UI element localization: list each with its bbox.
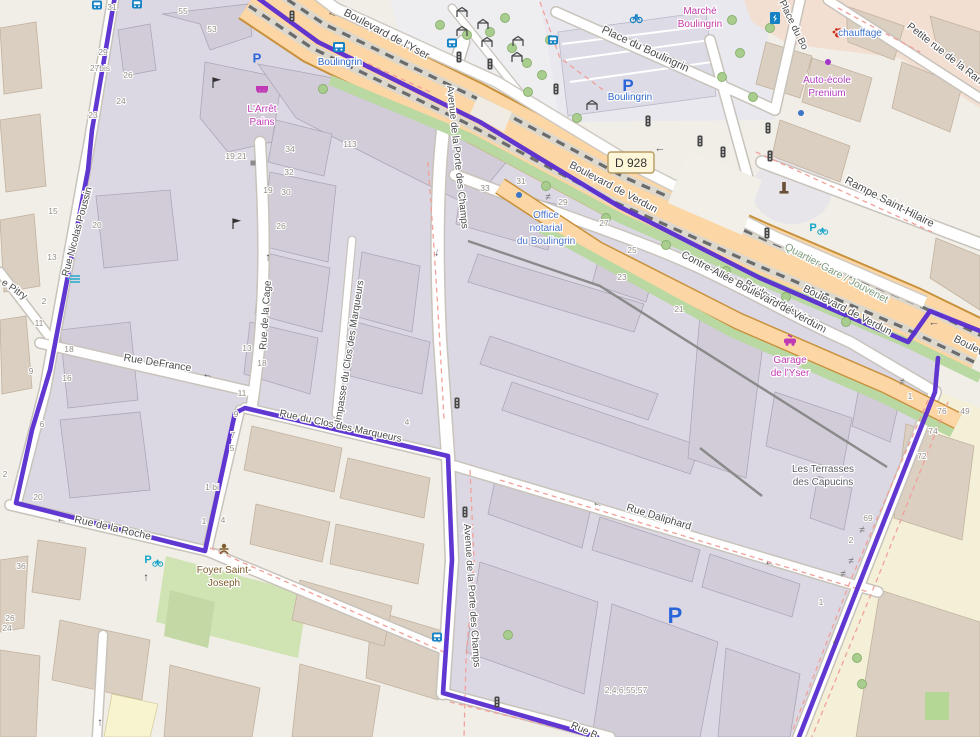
tree-icon xyxy=(319,85,328,94)
poi-label-garage-yser: Garage xyxy=(773,355,807,366)
house-number: 49 xyxy=(960,406,970,416)
house-number: 1 xyxy=(819,597,824,607)
poi-label-marche-boulingrin: Boulingrin xyxy=(678,19,722,30)
traffic-light-icon xyxy=(765,228,770,239)
house-number: 74 xyxy=(928,426,938,436)
house-number: 72 xyxy=(917,451,927,461)
tree-icon xyxy=(728,16,737,25)
house-number: 16 xyxy=(62,373,72,383)
tree-icon xyxy=(524,88,533,97)
house-number: 24 xyxy=(2,623,12,633)
svg-text:←: ← xyxy=(929,317,940,329)
house-number: 36 xyxy=(16,561,26,571)
gate-icon: ≠ xyxy=(848,556,854,567)
house-number: 55 xyxy=(178,6,188,16)
bus-stop-icon xyxy=(132,0,142,9)
road-ref-badge: D 928 xyxy=(608,152,654,173)
gate-icon: ≠ xyxy=(859,525,865,536)
tree-icon xyxy=(504,631,513,640)
house-number: 19 xyxy=(263,185,273,195)
house-number: 19;21 xyxy=(225,151,247,161)
dot-blue-icon xyxy=(798,110,804,116)
traffic-light-icon xyxy=(554,84,559,95)
arrow-left-icon: ← xyxy=(655,143,666,155)
map-svg: PPPPP≠≠≠≠≠←←←←←←←←↑↑↑↓↓ 3155532927bis262… xyxy=(0,0,980,737)
green-plot xyxy=(925,692,949,720)
charging-station-icon xyxy=(770,12,780,24)
tree-icon xyxy=(662,241,671,250)
svg-text:≠: ≠ xyxy=(840,569,846,580)
house-number: 2 xyxy=(849,535,854,545)
traffic-light-icon xyxy=(698,136,703,147)
house-number: 9 xyxy=(234,409,239,419)
poi-label-office-notarial: du Boulingrin xyxy=(517,236,575,247)
tree-icon xyxy=(501,14,510,23)
traffic-light-icon xyxy=(488,59,493,70)
house-number: 32 xyxy=(284,167,294,177)
arrow-up-icon: ↑ xyxy=(97,717,103,729)
house-number: 76 xyxy=(937,406,947,416)
poi-label-marche-boulingrin: Marché xyxy=(683,6,717,17)
house-number: 31 xyxy=(516,176,526,186)
svg-text:↑: ↑ xyxy=(143,572,149,584)
house-number: 24 xyxy=(116,96,126,106)
house-number: 7 xyxy=(231,430,236,440)
svg-text:P: P xyxy=(668,603,683,628)
svg-text:↑: ↑ xyxy=(97,717,103,729)
shop-awning-icon xyxy=(256,86,268,93)
house-number: 27bis xyxy=(90,63,110,73)
poi-label-chauffage: chauffage xyxy=(838,28,882,39)
arrow-up-icon: ↑ xyxy=(143,572,149,584)
house-number: 1 xyxy=(908,391,913,401)
svg-text:↑: ↑ xyxy=(265,252,271,264)
tree-icon xyxy=(749,93,758,102)
house-number: 1 bi xyxy=(205,482,219,492)
gate-icon: ≠ xyxy=(840,569,846,580)
parking-icon: P xyxy=(668,603,683,628)
house-number: 26 xyxy=(123,70,133,80)
house-number: 21 xyxy=(674,304,684,314)
poi-label-parking-boulingrin: Boulingrin xyxy=(608,92,652,103)
house-number: 20 xyxy=(33,492,43,502)
house-number: 26 xyxy=(276,221,286,231)
house-number: 11 xyxy=(238,388,247,398)
traffic-light-icon xyxy=(457,52,462,63)
svg-text:≠: ≠ xyxy=(848,556,854,567)
tree-icon xyxy=(523,59,532,68)
house-number: 23 xyxy=(617,272,627,282)
house-number: 13 xyxy=(47,252,57,262)
tree-icon xyxy=(718,73,727,82)
traffic-light-icon xyxy=(463,507,468,518)
house-number: 53 xyxy=(207,24,217,34)
poi-label-arret-pains: L'Arrêt xyxy=(247,104,276,115)
house-number: 18 xyxy=(64,344,74,354)
house-number: 25 xyxy=(627,245,637,255)
traffic-light-icon xyxy=(495,697,500,708)
map-canvas[interactable]: PPPPP≠≠≠≠≠←←←←←←←←↑↑↑↓↓ 3155532927bis262… xyxy=(0,0,980,737)
house-number: 4 xyxy=(221,515,226,525)
house-number: 15 xyxy=(48,206,58,216)
poi-label-tram-stop-boulingrin: Boulingrin xyxy=(318,57,362,68)
poi-label-auto-ecole: Auto-école xyxy=(803,75,851,86)
poi-label-foyer-saint-joseph: Foyer Saint- xyxy=(197,565,251,576)
svg-text:≠: ≠ xyxy=(899,377,905,388)
svg-text:P: P xyxy=(253,51,262,66)
dot-gray-icon xyxy=(251,161,256,166)
arrow-left-icon: ← xyxy=(202,368,215,382)
house-number: 26 xyxy=(5,613,15,623)
poi-label-arret-pains: Pains xyxy=(249,117,274,128)
gate-icon: ≠ xyxy=(899,377,905,388)
house-number: 31 xyxy=(107,2,117,12)
house-number: 13 xyxy=(242,343,252,353)
traffic-light-icon xyxy=(290,11,295,22)
tree-icon xyxy=(486,28,495,37)
poi-label-auto-ecole: Prenium xyxy=(808,88,845,99)
svg-text:←: ← xyxy=(655,143,666,155)
house-number: 29 xyxy=(558,197,568,207)
gate-icon: ≠ xyxy=(545,192,551,203)
house-number: 33 xyxy=(480,183,490,193)
house-number: 2,4,6,55,57 xyxy=(605,685,648,695)
house-number: 11 xyxy=(35,318,44,328)
tree-icon xyxy=(858,680,867,689)
poi-label-garage-yser: de l'Yser xyxy=(771,368,810,379)
bus-stop-icon xyxy=(447,39,457,48)
house-number: 34 xyxy=(285,144,295,154)
house-number: 4 xyxy=(405,417,410,427)
dot-blue-icon xyxy=(516,192,522,198)
svg-text:≠: ≠ xyxy=(859,525,865,536)
tree-icon xyxy=(766,24,775,33)
svg-text:P: P xyxy=(809,222,816,234)
house-number: 9 xyxy=(29,366,34,376)
traffic-light-icon xyxy=(768,151,773,162)
dot-purple-icon xyxy=(825,59,831,65)
road-ref-text: D 928 xyxy=(615,156,647,170)
house-number: 6 xyxy=(40,419,45,429)
tree-icon xyxy=(573,114,582,123)
svg-text:←: ← xyxy=(202,368,215,382)
house-number: 69 xyxy=(863,513,873,523)
house-number: 113 xyxy=(343,139,357,149)
tree-icon xyxy=(853,654,862,663)
tree-icon xyxy=(736,49,745,58)
tree-icon xyxy=(538,71,547,80)
tram-stop-icon xyxy=(333,42,345,52)
bus-stop-icon xyxy=(432,633,442,642)
house-number: 27 xyxy=(599,218,609,228)
parking-icon: P xyxy=(253,51,262,66)
arrow-up-icon: ↑ xyxy=(265,252,271,264)
house-number: 30 xyxy=(281,187,291,197)
house-number: 29 xyxy=(98,47,108,57)
svg-text:≠: ≠ xyxy=(545,192,551,203)
house-number: 23 xyxy=(88,110,98,120)
house-number: 5 xyxy=(230,443,235,453)
poi-label-foyer-saint-joseph: Joseph xyxy=(208,578,240,589)
tree-icon xyxy=(508,44,517,53)
traffic-light-icon xyxy=(721,147,726,158)
house-number: 1 xyxy=(202,516,207,526)
svg-text:P: P xyxy=(144,554,151,566)
poi-label-office-notarial: notarial xyxy=(530,223,563,234)
traffic-light-icon xyxy=(455,398,460,409)
poi-label-terrasses-capucins: des Capucins xyxy=(793,477,854,488)
house-number: 18 xyxy=(257,358,267,368)
traffic-light-icon xyxy=(646,116,651,127)
poi-label-terrasses-capucins: Les Terrasses xyxy=(792,464,854,475)
house-number: 2 xyxy=(42,296,47,306)
bus-stop-icon xyxy=(92,1,102,10)
tree-icon xyxy=(436,21,445,30)
house-number: 20 xyxy=(92,220,102,230)
poi-label-office-notarial: Office xyxy=(533,210,559,221)
house-number: 2 xyxy=(3,469,8,479)
tree-icon xyxy=(542,182,551,191)
arrow-left-icon: ← xyxy=(929,317,940,329)
tree-icon xyxy=(842,318,851,327)
traffic-light-icon xyxy=(766,123,771,134)
bus-stop-icon xyxy=(548,36,558,45)
